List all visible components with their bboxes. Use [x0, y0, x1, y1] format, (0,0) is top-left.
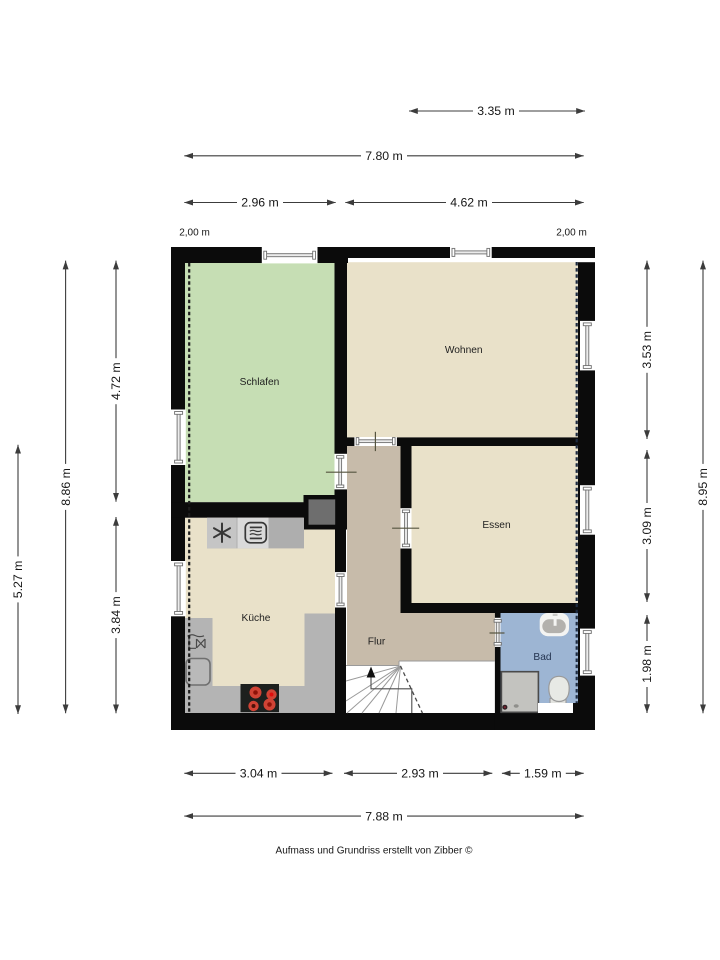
svg-text:3.09 m: 3.09 m: [640, 507, 654, 545]
svg-text:Aufmass und Grundriss erstellt: Aufmass und Grundriss erstellt von Zibbe…: [276, 846, 474, 857]
svg-text:5.27 m: 5.27 m: [11, 561, 25, 599]
svg-text:3.04 m: 3.04 m: [240, 767, 278, 781]
svg-text:4.62 m: 4.62 m: [450, 196, 488, 210]
svg-text:3.53 m: 3.53 m: [640, 331, 654, 369]
svg-text:3.35 m: 3.35 m: [477, 104, 515, 118]
svg-text:8.95 m: 8.95 m: [696, 468, 710, 506]
svg-text:Bad: Bad: [533, 652, 551, 663]
svg-text:4.72 m: 4.72 m: [109, 362, 123, 400]
svg-text:Flur: Flur: [368, 637, 386, 648]
svg-text:Schlafen: Schlafen: [240, 377, 280, 388]
svg-text:2.96 m: 2.96 m: [241, 196, 279, 210]
svg-text:7.88 m: 7.88 m: [365, 809, 403, 823]
svg-text:2,00 m: 2,00 m: [556, 228, 587, 239]
svg-text:Wohnen: Wohnen: [445, 345, 483, 356]
svg-text:8.86 m: 8.86 m: [59, 468, 73, 506]
svg-text:1.98 m: 1.98 m: [640, 645, 654, 683]
svg-text:Essen: Essen: [482, 520, 510, 531]
svg-text:1.59 m: 1.59 m: [524, 767, 562, 781]
svg-text:7.80 m: 7.80 m: [365, 149, 403, 163]
svg-text:Küche: Küche: [242, 613, 271, 624]
svg-text:2.93 m: 2.93 m: [401, 767, 439, 781]
svg-text:2,00 m: 2,00 m: [179, 228, 210, 239]
svg-text:3.84 m: 3.84 m: [109, 596, 123, 634]
